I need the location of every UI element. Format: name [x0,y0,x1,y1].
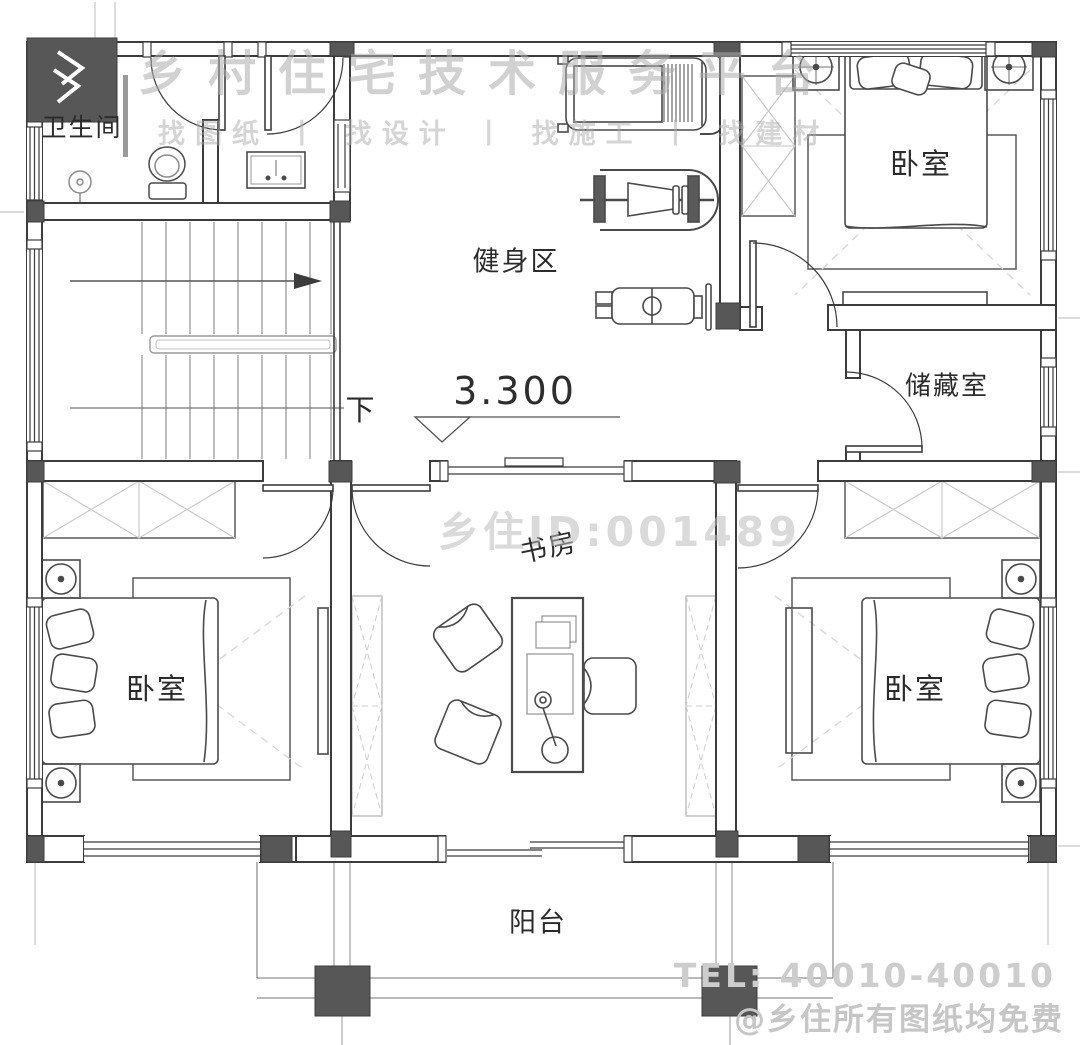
stair-handrail [150,336,336,353]
elevation-value: 3.300 [453,369,577,413]
door-bedroom-bottom-left [263,485,333,558]
shower-drain [69,171,91,193]
window-left-bedroom [27,598,42,788]
tv-board-bottom-right [786,608,812,753]
toilet [149,147,186,199]
room-label-bathroom: 卫生间 [41,108,122,144]
wall-mid-right [818,461,1056,481]
tv-board-bottom-left [318,608,328,754]
balcony-column-left [315,966,370,1016]
window-bottom-left [84,836,260,862]
wall-study-west [331,461,351,857]
wall-mid-left [27,461,263,481]
window-mid-wall [440,458,632,481]
watermark-telephone: TEL: 40010-40010 [674,956,1056,995]
door-bedroom-top-right [750,241,837,327]
wall-storage-west [846,330,860,378]
weight-bench [580,170,718,230]
watermark-plan-id: 乡住ID:001489 [438,498,801,558]
window-bottom-right [830,836,1028,862]
door-study [352,485,430,566]
watermark-footer-note: @乡住所有图纸均免费 [734,994,1064,1039]
staircase [70,222,344,459]
watermark-platform-name: 乡村住宅技术服务平台 [138,34,838,104]
wall-bathroom-south [27,203,350,220]
window-left-stairs [27,240,42,451]
window-right-bedroom-bottom [1041,598,1056,788]
watermark-tagline: 找图纸 丨 找设计 丨 找施工 丨 找建材 [158,112,829,151]
sink-counter [247,152,305,188]
study-desk-set [430,598,636,772]
room-label-balcony: 阳台 [509,901,567,940]
stair-treads-lower [142,355,331,459]
room-label-bedroom-top-right: 卧室 [890,141,952,183]
window-left-bathroom [27,118,42,209]
room-label-bedroom-bottom-right: 卧室 [884,666,946,708]
wall-bedroom-storage-divider [828,305,1056,330]
stair-direction-arrow-icon [294,273,322,289]
window-right-storage [1041,358,1056,436]
exercise-machine [596,284,711,330]
elevation-marker [415,417,620,442]
room-label-bedroom-bottom-left: 卧室 [126,666,188,708]
sliding-door-balcony [438,836,632,862]
room-label-gym: 健身区 [473,240,560,279]
floor-plan-page: 卫生间 健身区 卧室 储藏室 书房 卧室 卧室 阳台 下 3.300 乡村住宅技… [0,0,1080,1045]
shower-screen [123,75,128,157]
room-label-storage: 储藏室 [905,366,989,403]
window-right-bedroom-top [1041,90,1056,260]
stairs-down-label: 下 [345,387,376,429]
